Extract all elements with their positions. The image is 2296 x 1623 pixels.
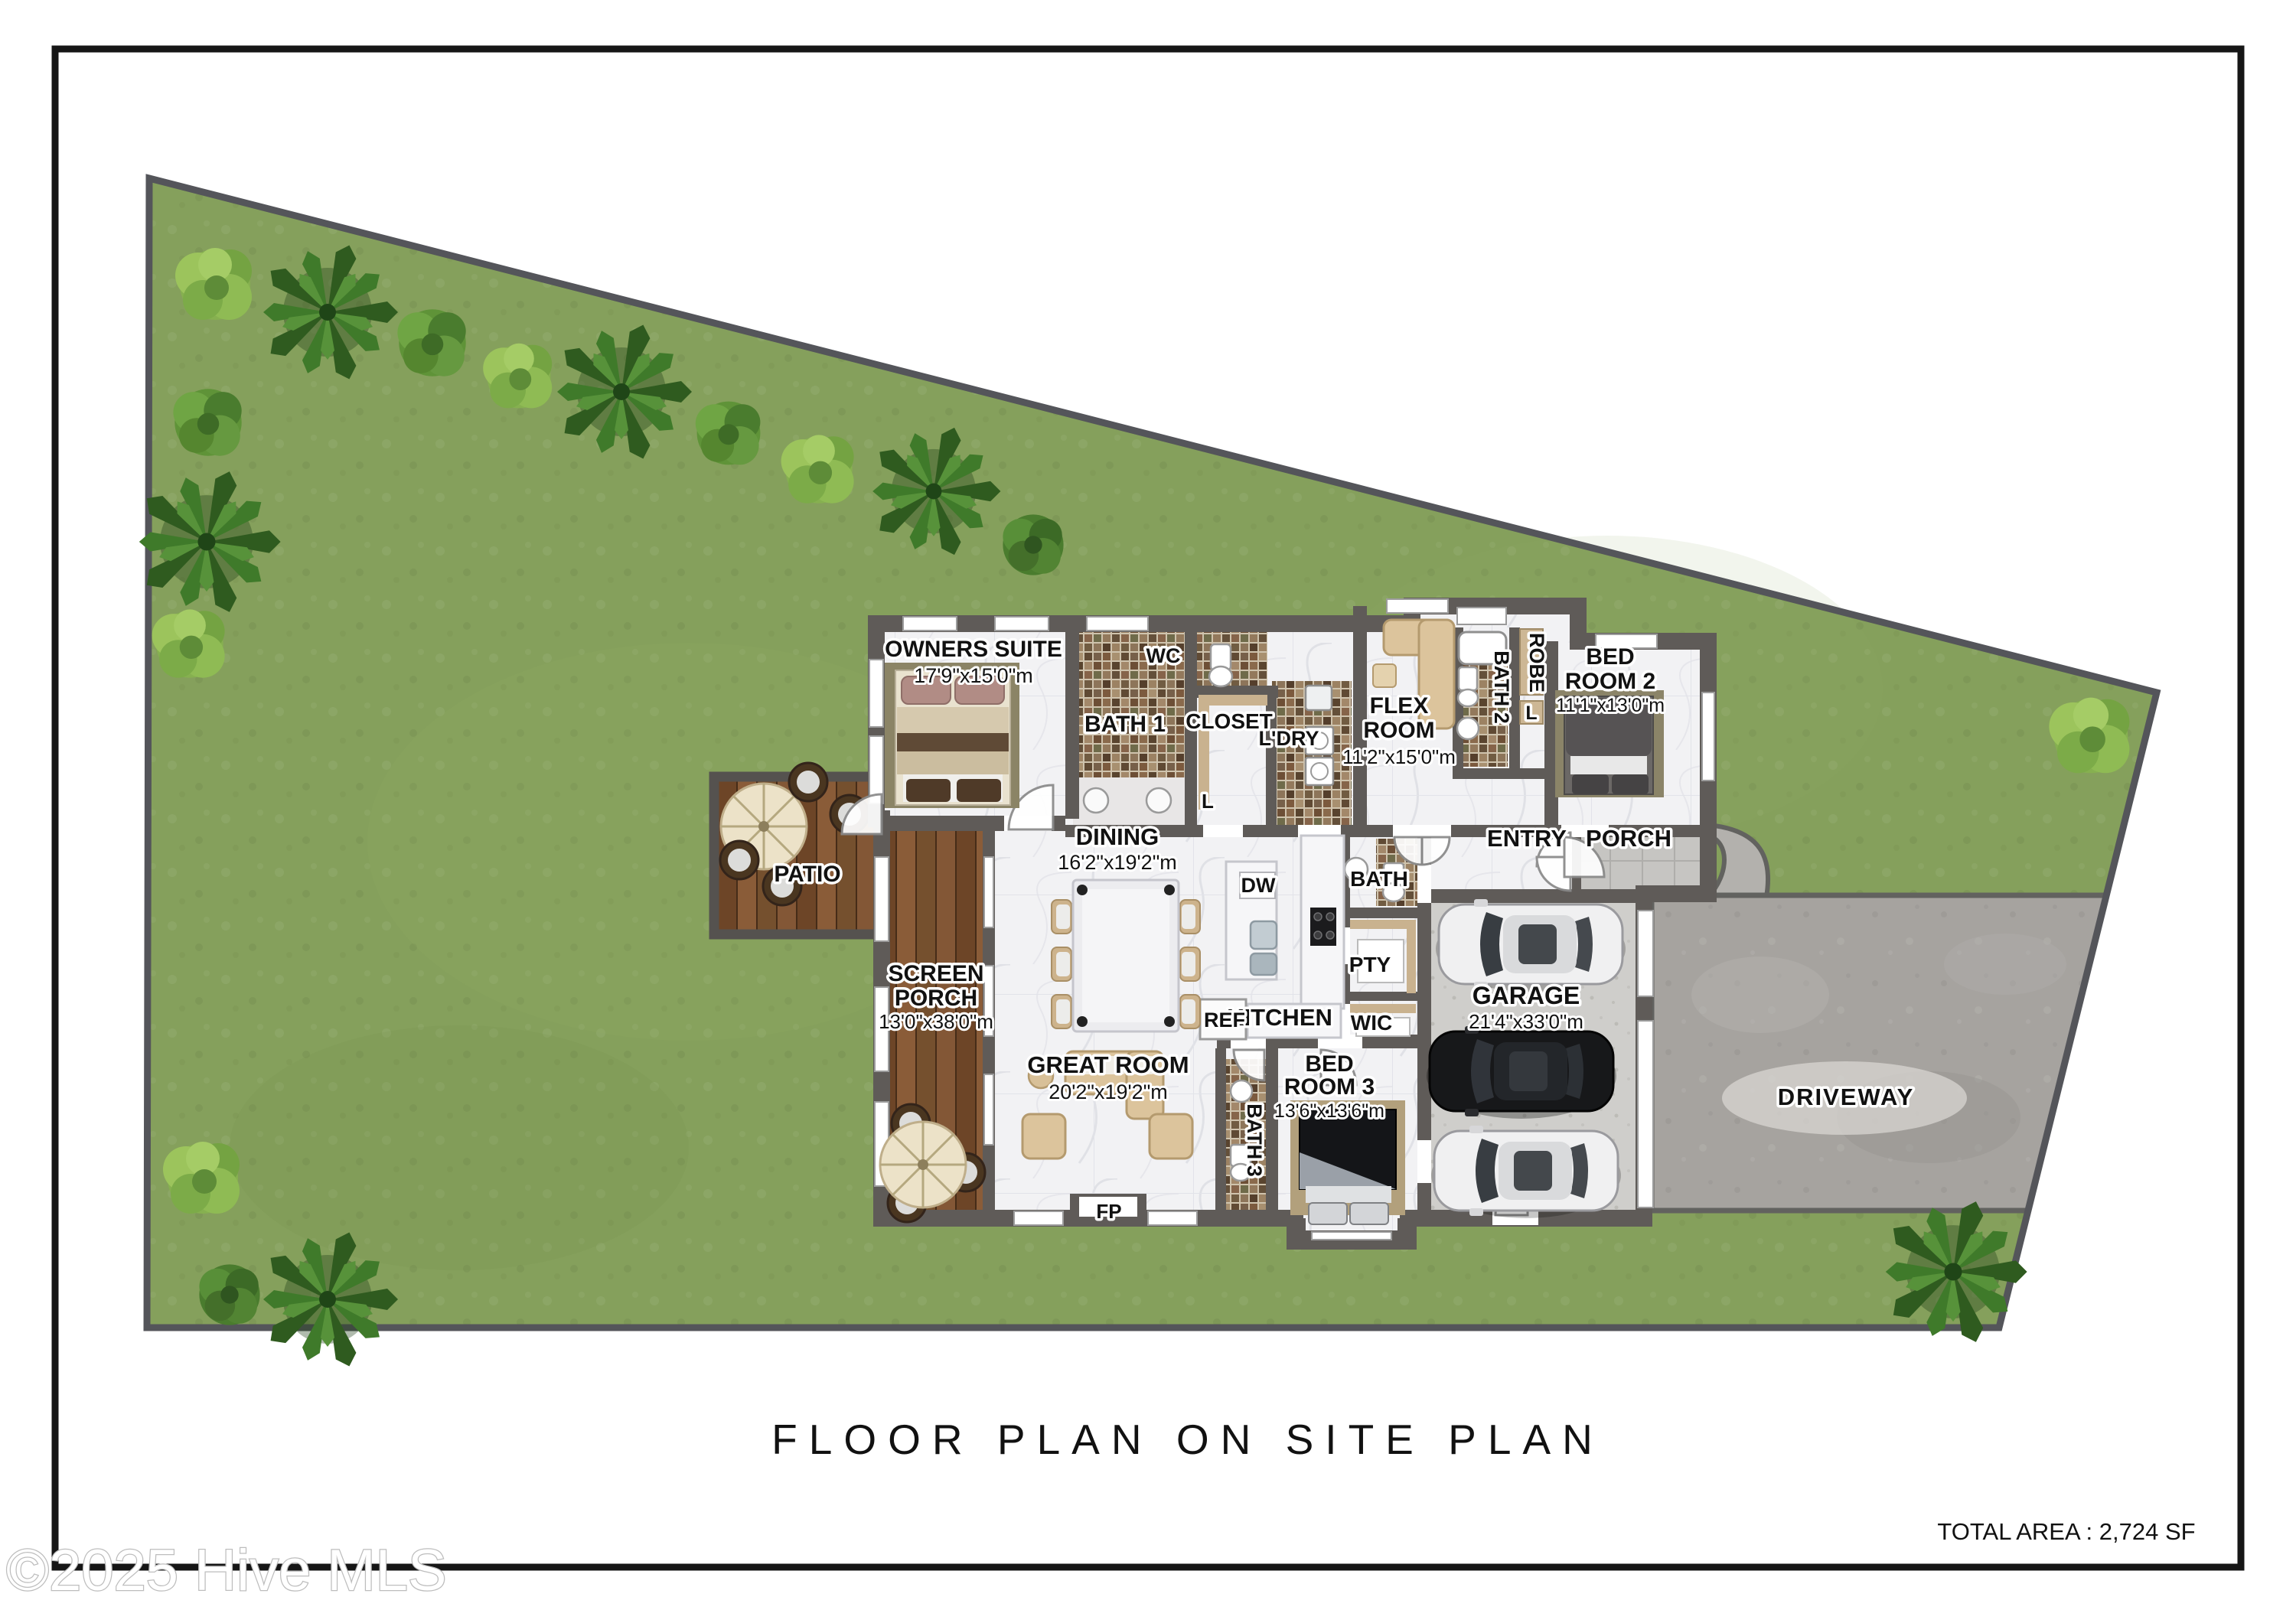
label-laundry: L'DRY [1259,727,1319,750]
bush [696,402,761,465]
label-fireplace: FP [1096,1200,1121,1223]
label-bed3-2: ROOM 3 [1284,1074,1375,1100]
label-owners-suite: OWNERS SUITE [885,637,1062,662]
label-dw: DW [1241,874,1276,897]
dims-screen-porch: 13'0"x38'0"m [879,1010,993,1033]
bush [2049,698,2129,774]
patio-chair [789,763,827,801]
car-black-middle [1427,1026,1616,1119]
label-bath3: BATH 3 [1243,1103,1266,1177]
dims-flex: 11'2"x15'0"m [1342,745,1456,768]
car-white-bottom [1431,1126,1621,1218]
label-great-room: GREAT ROOM [1027,1051,1189,1078]
bush [397,309,465,376]
car-white-top [1436,899,1626,992]
label-flex-1: FLEX [1370,693,1429,719]
dims-bed2: 11'1"x13'0"m [1556,695,1665,716]
label-linen1: L [1202,790,1214,813]
label-screen-porch-1: SCREEN [888,961,983,986]
label-garage: GARAGE [1473,982,1580,1009]
label-entry: ENTRY [1487,825,1567,852]
label-bath1: BATH 1 [1084,712,1166,737]
site-plan-canvas: OWNERS SUITE 17'9"x15'0"m BATH 1 WC CLOS… [0,0,2296,1623]
dining-set [1052,880,1200,1031]
patio-deck [714,763,882,934]
bush [483,344,552,409]
total-area-text: TOTAL AREA : 2,724 SF [1937,1518,2195,1545]
bush [1003,514,1063,575]
watermark: ©2025 Hive MLS [6,1538,447,1603]
label-porch: PORCH [1586,825,1671,852]
dims-dining: 16'2"x19'2"m [1058,851,1177,874]
label-wc: WC [1146,644,1181,667]
bush [781,435,854,503]
label-robe: ROBE [1525,633,1548,693]
bush [173,389,241,455]
label-driveway: DRIVEWAY [1778,1084,1915,1110]
patio-chair [720,841,758,879]
label-linen2: L [1525,702,1537,724]
bush [152,609,225,677]
floor-plan-page: OWNERS SUITE 17'9"x15'0"m BATH 1 WC CLOS… [0,0,2296,1623]
label-bed2-2: ROOM 2 [1565,669,1655,694]
label-flex-2: ROOM [1363,718,1434,743]
label-bed3-1: BED [1305,1051,1353,1077]
dims-owners-suite: 17'9"x15'0"m [914,664,1033,687]
dims-garage: 21'4"x33'0"m [1469,1010,1583,1033]
bush [175,248,252,320]
dims-bed3: 13'6"x13'6"m [1274,1100,1384,1122]
label-fridge: REF [1204,1009,1245,1031]
dims-great-room: 20'2"x19'2"m [1049,1080,1168,1103]
label-patio: PATIO [774,862,840,887]
label-screen-porch-2: PORCH [895,986,977,1011]
label-dining: DINING [1076,823,1159,850]
bush [199,1264,259,1325]
label-pantry: PTY [1349,953,1391,976]
page-title: FLOOR PLAN ON SITE PLAN [771,1416,1604,1463]
label-wic: WIC [1351,1011,1392,1035]
label-bed2-1: BED [1586,644,1634,670]
bush [163,1142,240,1214]
label-bath-main: BATH [1350,867,1408,891]
label-bath2: BATH 2 [1490,650,1513,724]
